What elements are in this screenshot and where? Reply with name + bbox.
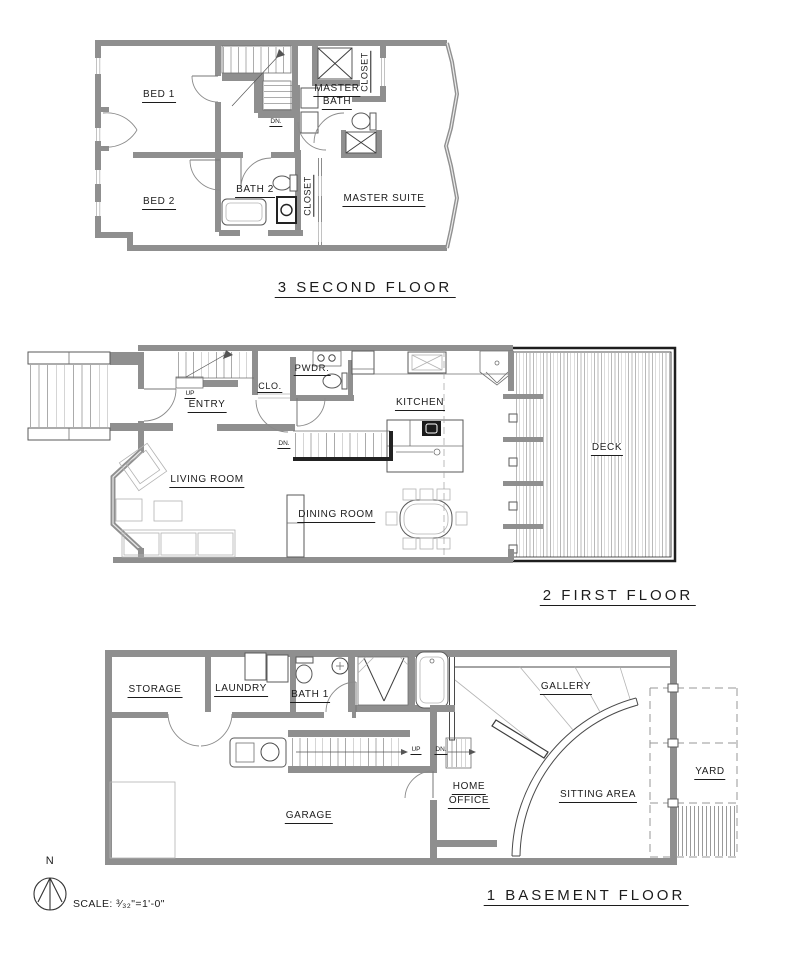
room-label-garage: GARAGE: [285, 811, 333, 824]
room-label-master-bath-line2: BATH: [322, 97, 352, 110]
floor-title-second: 3 SECOND FLOOR: [275, 280, 456, 298]
room-label-bath-1: BATH 1: [290, 690, 330, 703]
scale-value: ³⁄₃₂"=1'-0": [116, 898, 165, 910]
room-label-master-bath-line1: MASTER: [313, 84, 360, 97]
room-label-living-room: LIVING ROOM: [169, 475, 244, 488]
room-label-gallery: GALLERY: [540, 682, 592, 695]
room-label-laundry: LAUNDRY: [214, 684, 268, 697]
room-label-home-office-line1: HOME: [452, 782, 486, 795]
north-arrow: [34, 878, 66, 910]
room-label-entry: ENTRY: [188, 400, 227, 413]
room-label-bath-2: BATH 2: [235, 185, 275, 198]
stair-label-dn-basement: DN.: [434, 747, 447, 755]
room-label-closet-lower: CLOSET: [303, 175, 314, 217]
scale-label: SCALE:: [73, 898, 113, 910]
room-label-bed-2: BED 2: [142, 197, 176, 210]
floorplan-drawing: [0, 0, 800, 962]
floor-title-basement: 1 BASEMENT FLOOR: [484, 888, 689, 906]
room-label-yard: YARD: [694, 767, 725, 780]
stair-label-up-basement: UP: [410, 747, 421, 755]
stair-label-dn-first: DN.: [277, 441, 290, 449]
scale-note: SCALE: ³⁄₃₂"=1'-0": [73, 898, 165, 910]
north-label: N: [45, 856, 56, 869]
room-label-sitting-area: SITTING AREA: [559, 790, 637, 803]
room-label-kitchen: KITCHEN: [395, 398, 445, 411]
room-label-clo: CLO.: [257, 382, 282, 393]
room-label-closet-upper: CLOSET: [360, 51, 371, 93]
room-label-deck: DECK: [591, 443, 623, 456]
floor-plan-sheet: BED 1 BED 2 BATH 2 MASTER BATH CLOSET CL…: [0, 0, 800, 962]
room-label-dining-room: DINING ROOM: [297, 510, 375, 523]
stair-label-dn-second: DN.: [269, 119, 282, 127]
room-label-pwdr: PWDR.: [294, 364, 331, 376]
room-label-storage: STORAGE: [128, 685, 183, 698]
basement-floor-plan: [105, 650, 737, 865]
floor-title-first: 2 FIRST FLOOR: [540, 588, 696, 606]
room-label-home-office-line2: OFFICE: [448, 796, 490, 809]
stair-label-up-first: UP: [184, 391, 195, 399]
second-floor-plan: [94, 40, 457, 251]
room-label-master-suite: MASTER SUITE: [342, 194, 425, 207]
first-floor-plan: [28, 345, 675, 563]
room-label-bed-1: BED 1: [142, 90, 176, 103]
